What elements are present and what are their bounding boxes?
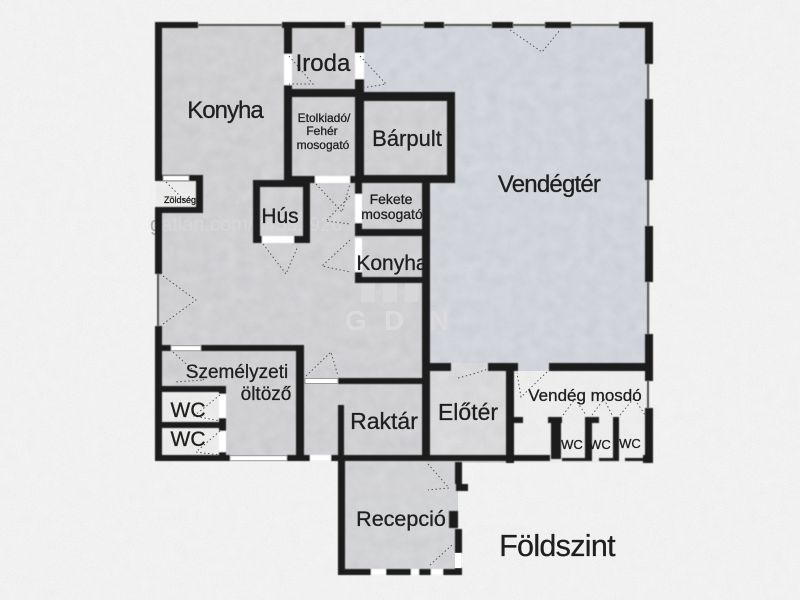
svg-text:öltöző: öltöző [241,384,292,405]
svg-text:mosogató: mosogató [297,138,350,152]
svg-text:N: N [429,305,449,336]
svg-text:Személyzeti: Személyzeti [186,362,288,383]
svg-text:WC: WC [619,436,641,451]
svg-text:mosogató: mosogató [361,206,423,222]
svg-text:WC: WC [171,428,206,451]
svg-text:Raktár: Raktár [350,408,418,434]
svg-text:WC: WC [561,437,583,452]
svg-text:G: G [345,305,367,336]
svg-text:gatlan.com/34552926: gatlan.com/34552926 [150,214,342,236]
svg-text:Előtér: Előtér [438,399,498,425]
svg-text:D: D [384,305,404,336]
svg-text:Fehér: Fehér [306,124,337,138]
svg-text:Vendégtér: Vendégtér [498,171,601,198]
svg-text:Recepció: Recepció [356,507,446,531]
svg-text:Hús: Hús [261,205,298,228]
svg-text:Fekete: Fekete [370,191,413,207]
svg-text:Konyha: Konyha [187,97,264,124]
svg-text:Bárpult: Bárpult [372,126,442,151]
svg-text:Iroda: Iroda [296,50,351,77]
svg-text:Konyha: Konyha [356,252,428,275]
svg-text:Zöldség: Zöldség [164,195,196,205]
svg-text:WC: WC [171,399,206,422]
svg-text:Vendég mosdó: Vendég mosdó [528,386,641,405]
svg-text:Földszint: Földszint [499,529,616,563]
svg-text:Etolkiadó/: Etolkiadó/ [298,111,351,125]
svg-text:WC: WC [589,437,611,452]
